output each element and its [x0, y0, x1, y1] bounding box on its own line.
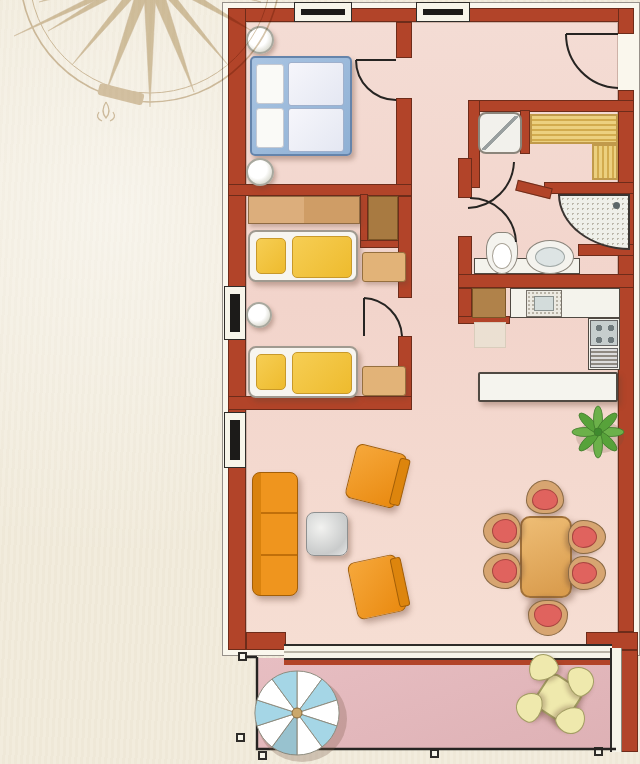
floor-plan-page — [0, 0, 640, 764]
bathroom-door-swing — [470, 198, 516, 242]
bedroom2-door-swing — [364, 298, 402, 336]
potted-plant — [572, 406, 624, 458]
plan-overlay — [0, 0, 640, 764]
bedroom1-door-swing — [356, 60, 396, 100]
entrance-door-swing — [566, 34, 618, 88]
sauna-door-swing — [468, 162, 514, 208]
